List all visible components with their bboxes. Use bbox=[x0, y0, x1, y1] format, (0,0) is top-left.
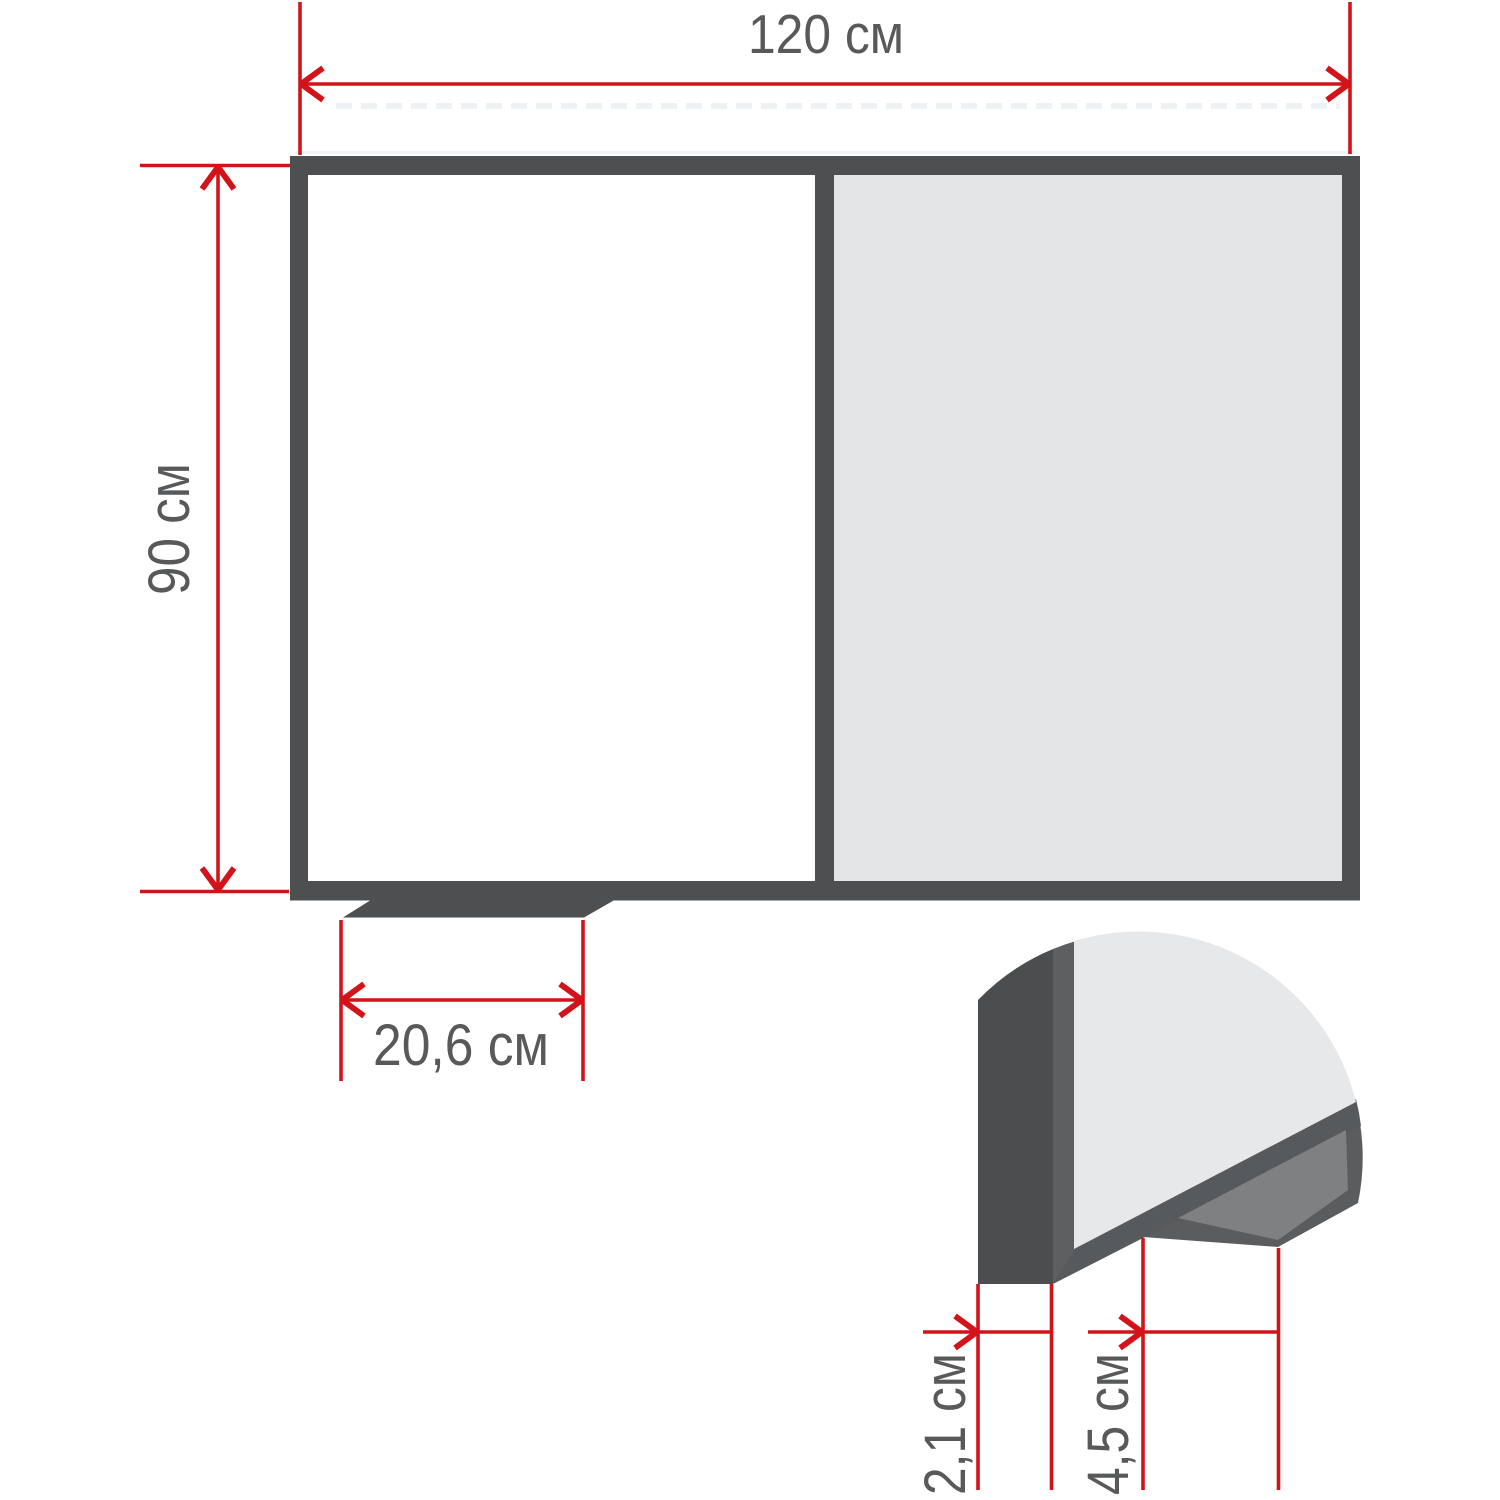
svg-text:20,6 см: 20,6 см bbox=[373, 1013, 549, 1078]
svg-text:90 см: 90 см bbox=[137, 463, 202, 595]
svg-text:2,1 см: 2,1 см bbox=[913, 1353, 978, 1495]
svg-text:120 см: 120 см bbox=[748, 3, 904, 65]
svg-text:4,5 см: 4,5 см bbox=[1076, 1353, 1141, 1495]
